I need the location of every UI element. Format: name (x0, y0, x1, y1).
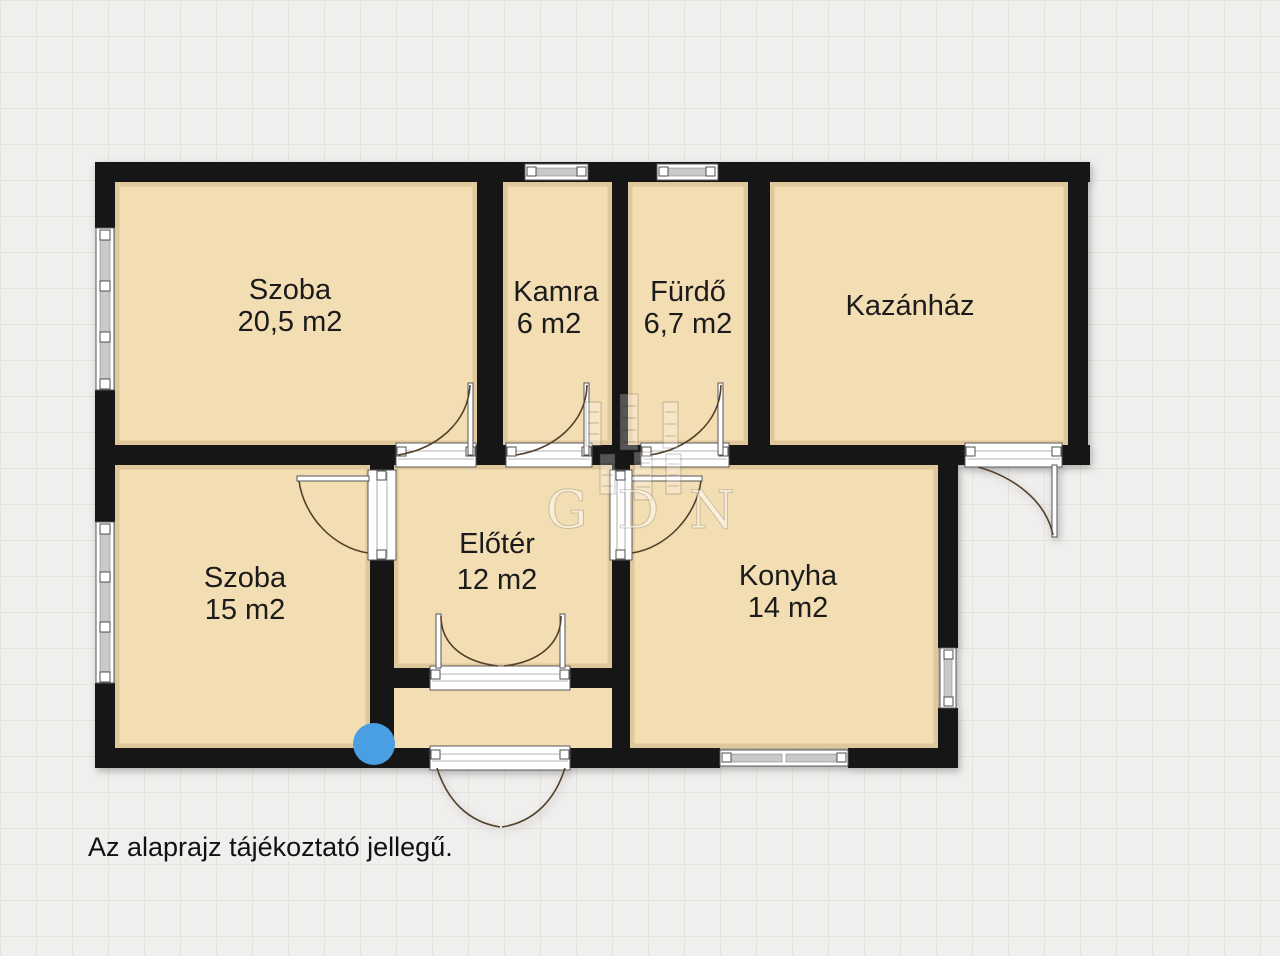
floorplan-canvas: GDN Szoba 20,5 m2 Kamra 6 m2 Fürdő 6,7 m… (0, 0, 1280, 956)
disclaimer-caption: Az alaprajz tájékoztató jellegű. (88, 832, 453, 862)
wall-segment (748, 182, 770, 445)
door-sill (368, 470, 396, 560)
window-symbol (720, 750, 848, 766)
room-vestibule (394, 688, 612, 748)
wall-segment (567, 668, 630, 688)
blue-marker[interactable] (353, 723, 395, 765)
window-symbol (657, 164, 718, 180)
door-kazanhaz-exterior (978, 465, 1057, 537)
wall-segment (612, 558, 630, 748)
label-konyha-area: 14 m2 (748, 592, 829, 624)
wall-segment (1068, 162, 1088, 465)
door-sill (965, 443, 1062, 467)
door-sill (396, 443, 476, 467)
wall-segment (1060, 445, 1090, 465)
wall-segment (567, 748, 720, 768)
label-eloter-name: Előtér (459, 528, 535, 560)
logo-bar (620, 394, 638, 450)
wall-segment (472, 445, 508, 465)
wall-segment (394, 668, 433, 688)
wall-segment (727, 445, 967, 465)
double-door-entrance (437, 768, 565, 827)
wall-segment (938, 465, 958, 648)
label-eloter-area: 12 m2 (457, 564, 538, 596)
logo-bar (586, 402, 601, 446)
window-symbol (940, 648, 956, 708)
logo-bar (663, 402, 678, 448)
label-kamra-name: Kamra (513, 276, 599, 308)
wall-segment (95, 162, 1090, 182)
label-kazanhaz-name: Kazánház (846, 290, 975, 322)
label-furdo-name: Fürdő (650, 276, 726, 308)
wall-segment (477, 182, 503, 445)
label-szoba2-name: Szoba (204, 562, 287, 594)
label-furdo-area: 6,7 m2 (644, 308, 733, 340)
window-symbol (525, 164, 588, 180)
wall-segment (95, 445, 398, 465)
window-symbol (96, 228, 114, 390)
label-konyha-name: Konyha (739, 560, 838, 592)
label-szoba1-area: 20,5 m2 (238, 306, 343, 338)
label-kamra-area: 6 m2 (517, 308, 581, 340)
label-szoba1-name: Szoba (249, 274, 332, 306)
door-sill (430, 666, 570, 690)
door-sill (430, 746, 570, 770)
window-symbol (96, 522, 114, 683)
label-szoba2-area: 15 m2 (205, 594, 286, 626)
wall-segment (848, 748, 958, 768)
wall-segment (95, 162, 115, 228)
wall-segment (370, 558, 394, 748)
floorplan-drawing: GDN Szoba 20,5 m2 Kamra 6 m2 Fürdő 6,7 m… (0, 0, 1280, 956)
watermark-text: GDN (546, 481, 765, 541)
